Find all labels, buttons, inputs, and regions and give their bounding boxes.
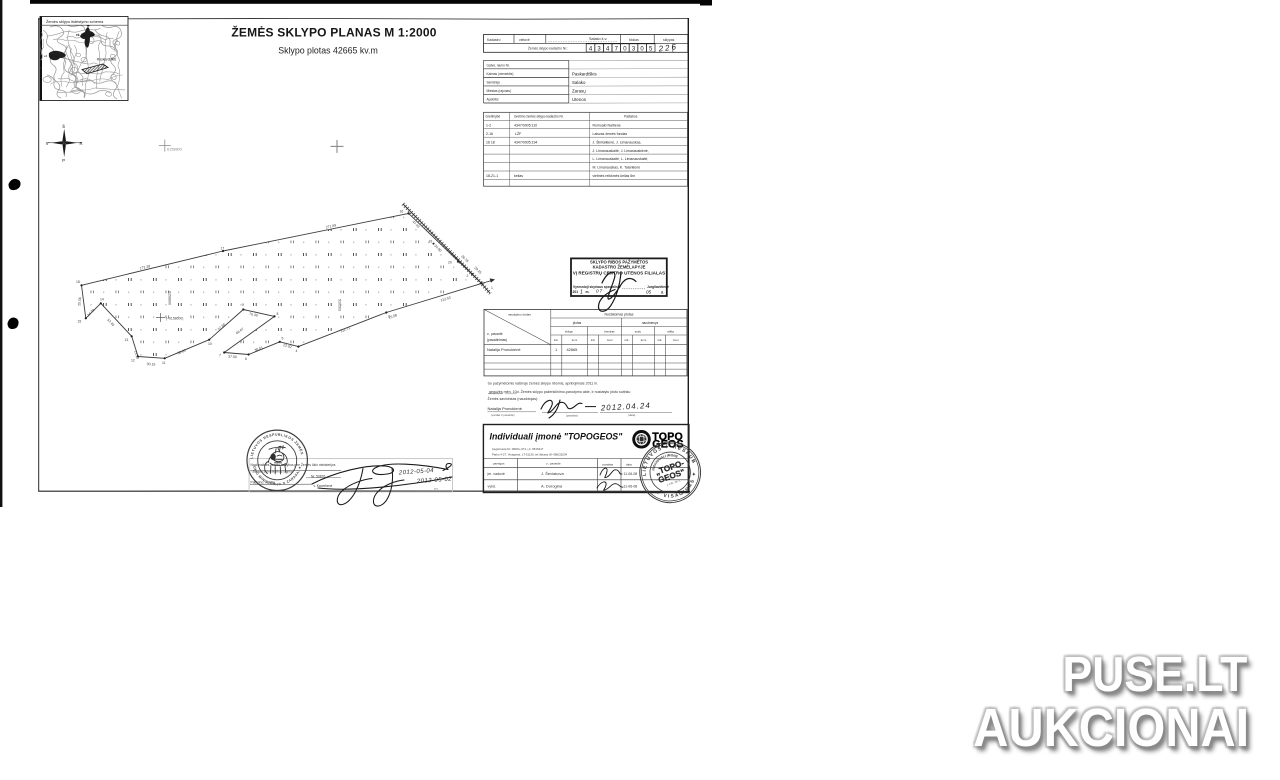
svg-text:KADASTRO ŽEMĖLAPYJE: KADASTRO ŽEMĖLAPYJE (593, 265, 646, 270)
svg-text:7: 7 (615, 47, 619, 53)
svg-text:14: 14 (100, 298, 104, 302)
svg-text:vietovė: vietovė (519, 38, 530, 42)
svg-text:ind.: ind. (658, 338, 663, 342)
svg-text:Nustatomas plotas: Nustatomas plotas (605, 313, 634, 317)
svg-text:Natalija Pronckienė: Natalija Pronckienė (488, 406, 523, 411)
svg-text:15: 15 (78, 320, 82, 324)
svg-text:66.67: 66.67 (235, 327, 244, 335)
svg-text:30.19: 30.19 (146, 362, 155, 367)
svg-text:201: 201 (573, 290, 579, 294)
svg-text:Sklypo plotas 42665 kv.m: Sklypo plotas 42665 kv.m (278, 46, 378, 56)
svg-text:Seniūnija: Seniūnija (487, 80, 500, 84)
svg-text:Utenos: Utenos (572, 97, 587, 102)
svg-text:Gretimo žemės sklypo kadastro: Gretimo žemės sklypo kadastro Nr. (514, 115, 564, 119)
svg-text:a.v.: a.v. (434, 487, 439, 491)
svg-text:Kadastro: Kadastro (487, 38, 501, 42)
svg-text:A. Dorogina: A. Dorogina (541, 483, 563, 488)
svg-text:pareigos: pareigos (493, 462, 505, 466)
svg-text:4: 4 (296, 349, 298, 353)
svg-text:kv.m: kv.m (641, 338, 647, 342)
svg-text:L. Limanauskaitė, L. Limanausk: L. Limanauskaitė, L. Limanauskaitė, (593, 157, 649, 161)
svg-text:42665: 42665 (567, 347, 578, 352)
svg-text:v., pavardė: v., pavardė (487, 332, 503, 336)
svg-text:16: 16 (400, 210, 404, 214)
svg-text:VĮ REGISTRŲ CENTRO UTENOS FILI: VĮ REGISTRŲ CENTRO UTENOS FILIALAS (573, 271, 665, 276)
svg-text:2012-05-04: 2012-05-04 (398, 467, 435, 477)
svg-text:Zarasų: Zarasų (572, 88, 586, 93)
svg-text:11: 11 (162, 361, 166, 365)
svg-text:5: 5 (649, 47, 653, 53)
svg-text:Salako k.v.: Salako k.v. (589, 37, 607, 41)
svg-text:M. Limanauskas, K. Talantienė: M. Limanauskas, K. Talantienė (593, 166, 641, 170)
svg-text:įm. vadovė: įm. vadovė (488, 472, 505, 476)
svg-text:Individuali įmonė "TOPOGEOS": Individuali įmonė "TOPOGEOS" (490, 431, 624, 441)
svg-text:Įregistruota Nr. 099CL-671, į: Įregistruota Nr. 099CL-671, į.k. 9515417 (492, 447, 544, 451)
svg-text:naudmenys: naudmenys (642, 321, 659, 325)
svg-text:37.00: 37.00 (228, 355, 237, 360)
svg-text:4347/0005:194: 4347/0005:194 (514, 140, 537, 144)
svg-text:520563: 520563 (338, 299, 342, 311)
svg-text:Apskritis: Apskritis (487, 98, 499, 102)
svg-text:2-16: 2-16 (486, 132, 493, 136)
svg-text:226: 226 (657, 42, 678, 53)
svg-text:kelias: kelias (514, 174, 523, 178)
svg-text:kv.m: kv.m (572, 338, 578, 342)
svg-text:4: 4 (606, 47, 610, 53)
svg-text:ež. Pakertas: ež. Pakertas (76, 33, 95, 37)
svg-text:0: 0 (623, 47, 627, 53)
svg-text:25.56: 25.56 (77, 297, 82, 306)
svg-text:10: 10 (208, 342, 212, 346)
svg-text:v. Karvelienė: v. Karvelienė (314, 484, 333, 488)
svg-text:naudojimo būdas: naudojimo būdas (508, 312, 531, 316)
svg-text:kv.m: kv.m (673, 338, 679, 342)
svg-text:kv.m: kv.m (607, 338, 613, 342)
svg-text:5: 5 (282, 337, 284, 341)
svg-text:112.53: 112.53 (440, 296, 451, 303)
svg-text:0: 0 (640, 47, 644, 53)
svg-text:6158800: 6158800 (167, 148, 182, 152)
svg-text:m.: m. (586, 290, 590, 294)
svg-text:22.52: 22.52 (283, 343, 293, 349)
svg-text:vykd.: vykd. (488, 484, 496, 488)
svg-text:18: 18 (76, 280, 80, 284)
svg-text:V: V (46, 141, 49, 146)
svg-text:sklypas: sklypas (663, 38, 675, 42)
svg-text:Salako: Salako (572, 80, 586, 85)
svg-text:P: P (62, 158, 65, 163)
svg-text:(data): (data) (628, 413, 635, 417)
svg-text:2012.04.24: 2012.04.24 (600, 401, 651, 413)
svg-text:(parašas): (parašas) (566, 414, 578, 418)
svg-text:11-06-08: 11-06-08 (624, 472, 638, 476)
svg-text:J. Šimlaikienė, J. Limanauskas: J. Šimlaikienė, J. Limanauskas, (593, 139, 642, 144)
svg-text:ind.: ind. (591, 338, 596, 342)
svg-text:Laisvas žemės fondas: Laisvas žemės fondas (593, 132, 628, 136)
svg-text:d.: d. (661, 290, 664, 294)
svg-text:ŽEMĖS SKLYPO PLANAS M 1:200: ŽEMĖS SKLYPO PLANAS M 1:2000 (231, 25, 436, 40)
svg-text:parašas: parašas (603, 462, 614, 466)
svg-text:1: 1 (555, 347, 557, 352)
svg-text:17: 17 (221, 247, 225, 251)
svg-text:6: 6 (245, 357, 247, 361)
svg-text:4347/0005:110: 4347/0005:110 (514, 123, 537, 127)
svg-text:20: 20 (448, 261, 452, 265)
svg-text:3: 3 (388, 315, 390, 319)
svg-text:(–6158600): (–6158600) (166, 316, 183, 320)
svg-text:(pavadinimas): (pavadinimas) (487, 338, 507, 342)
svg-text:Natalija Pronckienė: Natalija Pronckienė (487, 347, 521, 352)
svg-text:R: R (80, 141, 83, 146)
svg-text:Gretimybė: Gretimybė (486, 115, 501, 119)
svg-text:12: 12 (131, 359, 135, 363)
svg-text:16 18: 16 18 (486, 140, 495, 144)
svg-text:Paskardiškis: Paskardiškis (572, 71, 597, 76)
svg-text:18-21-1: 18-21-1 (486, 174, 498, 178)
svg-text:LŽF: LŽF (515, 131, 521, 136)
svg-text:plotas: plotas (573, 321, 582, 325)
svg-text:4: 4 (589, 47, 593, 53)
svg-text:1: 1 (580, 290, 583, 296)
svg-text:v., pavardė: v., pavardė (546, 462, 561, 466)
svg-text:1-2: 1-2 (486, 123, 491, 127)
svg-text:Su pažymėtomis natūroje žem: Su pažymėtomis natūroje žemės sklypo rib… (488, 382, 599, 386)
svg-text:Miestas (rajonas): Miestas (rajonas) (487, 89, 511, 93)
svg-text:07: 07 (596, 289, 603, 294)
svg-text:ež. Salėtas: ež. Salėtas (44, 54, 59, 58)
svg-text:J. Limanauskaitė, J. Limasausk: J. Limanauskaitė, J. Limasauskienė, (593, 149, 649, 153)
svg-text:Š: Š (62, 124, 65, 129)
svg-text:2: 2 (467, 274, 469, 278)
svg-text:Nacionalinės žemės tarnybos pr: Nacionalinės žemės tarnybos prie Žemės ū… (251, 462, 336, 467)
svg-text:Parko 4-27, Visaginas, LT-3113: Parko 4-27, Visaginas, LT-31130; tel./fa… (492, 453, 568, 457)
svg-text:miško: miško (667, 329, 675, 333)
svg-text:sodų: sodų (635, 329, 642, 333)
svg-text:blokas: blokas (629, 38, 639, 42)
svg-text:8: 8 (277, 312, 279, 316)
svg-text:sklypo: sklypo (565, 329, 573, 333)
svg-text:3: 3 (632, 47, 636, 53)
svg-text:Paskardiškis: Paskardiškis (97, 58, 116, 62)
svg-text:bendras: bendras (604, 329, 615, 333)
svg-text:Gatvė, namo Nr.: Gatvė, namo Nr. (487, 63, 510, 67)
svg-text:6158800: 6158800 (168, 291, 172, 305)
svg-text:52.45: 52.45 (106, 318, 115, 327)
svg-text:Pastabos: Pastabos (624, 115, 638, 119)
svg-text:(vardas ir pavardė): (vardas ir pavardė) (491, 413, 515, 417)
svg-text:1: 1 (491, 286, 493, 290)
svg-text:29.25: 29.25 (473, 266, 482, 275)
svg-text:Žemės sklypo kadastro Nr.:: Žemės sklypo kadastro Nr.: (528, 46, 568, 51)
svg-text:19: 19 (429, 240, 433, 244)
svg-text:ind.: ind. (554, 338, 559, 342)
svg-text:Romuald Nartiene: Romuald Nartiene (593, 123, 621, 127)
svg-text:Žemės sklypo išdėstymo schema: Žemės sklypo išdėstymo schema (46, 19, 104, 24)
svg-text:Žemės savininkas (naudotojas: Žemės savininkas (naudotojas): (488, 396, 539, 401)
svg-text:ind.: ind. (625, 338, 630, 342)
svg-text:Jurgilavičienė: Jurgilavičienė (647, 285, 669, 289)
svg-text:3: 3 (597, 47, 601, 53)
svg-text:7: 7 (219, 354, 221, 358)
svg-text:J. Ševiakova: J. Ševiakova (541, 471, 564, 476)
svg-text:11-06-08: 11-06-08 (624, 484, 638, 488)
svg-text:13: 13 (125, 338, 129, 342)
svg-text:05: 05 (646, 290, 652, 295)
svg-text:26.76: 26.76 (460, 254, 469, 263)
svg-text:data: data (626, 462, 632, 466)
svg-text:Kaimas (viensėdis): Kaimas (viensėdis) (487, 72, 514, 76)
svg-text:9: 9 (242, 303, 244, 307)
svg-text:76.30: 76.30 (249, 312, 258, 318)
svg-text:vietinės reikšmės kelias 6m: vietinės reikšmės kelias 6m (593, 174, 636, 178)
svg-text:gegužės mėn. 10d. Žemė: gegužės mėn. 10d. Žemės sklypo paženklin… (489, 389, 630, 394)
